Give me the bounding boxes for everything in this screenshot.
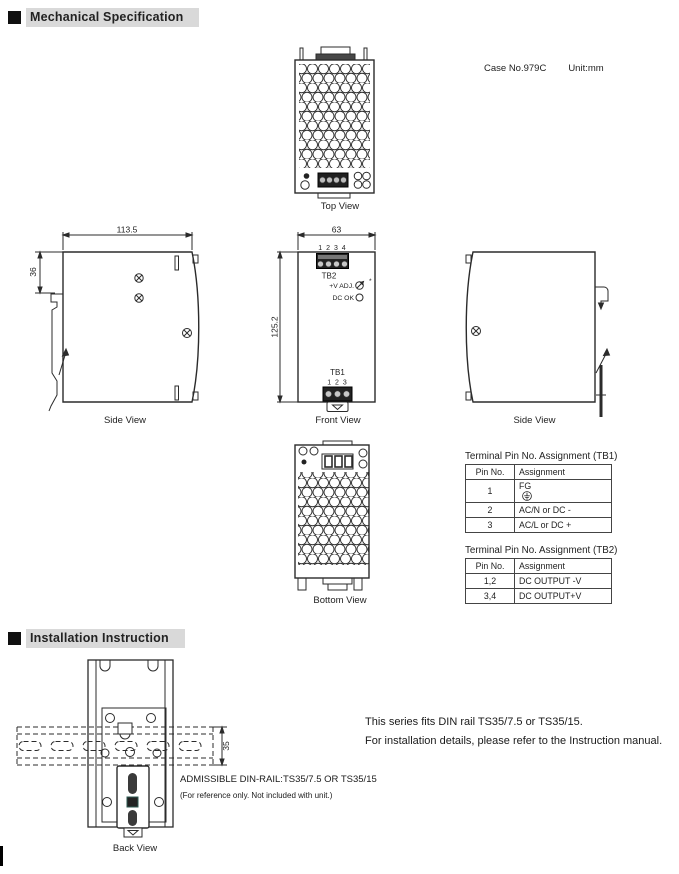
tb1-pin-numbers: 1 2 3: [327, 380, 348, 387]
tb2-row2-pin: 3,4: [466, 589, 515, 604]
bottom-view-drawing: [285, 440, 395, 598]
dim-body-width: 113.5: [117, 225, 138, 235]
tb1-row2-assign: AC/N or DC -: [515, 503, 612, 518]
tb1-label: TB1: [330, 368, 345, 377]
case-number: Case No.979C: [484, 63, 546, 74]
ground-icon: [522, 491, 532, 501]
table-row: 3 AC/L or DC +: [466, 518, 612, 533]
tb1-row3-assign: AC/L or DC +: [515, 518, 612, 533]
front-din-clip: [327, 402, 348, 412]
tb2-row2-assign: DC OUTPUT+V: [515, 589, 612, 604]
tb2-terminal-block: [317, 254, 349, 269]
fit-note-line1: This series fits DIN rail TS35/7.5 or TS…: [365, 713, 662, 732]
front-view-label: Front View: [282, 415, 394, 426]
fg-text: FG: [519, 481, 531, 491]
tb2-row1-pin: 1,2: [466, 574, 515, 589]
table-row: 1 FG: [466, 480, 612, 503]
section-header-installation: Installation Instruction: [8, 629, 185, 648]
tb1-row2-pin: 2: [466, 503, 515, 518]
fit-note-line2: For installation details, please refer t…: [365, 732, 662, 751]
tb2-pin-numbers: 1 2 3 4: [318, 245, 346, 252]
section-bullet-icon: [8, 632, 21, 645]
top-view-label: Top View: [285, 201, 395, 212]
din-rail-fit-note: This series fits DIN rail TS35/7.5 or TS…: [365, 713, 662, 750]
vent-holes-pattern: [298, 472, 369, 565]
dim-rail-width: 35: [221, 741, 231, 751]
section-header-mechanical: Mechanical Specification: [8, 8, 199, 27]
top-view-terminal-area: [301, 172, 371, 198]
dim-front-width: 63: [332, 225, 342, 235]
top-view-drawing: [285, 45, 395, 203]
tb2-col-assign: Assignment: [515, 559, 612, 574]
tb1-row3-pin: 3: [466, 518, 515, 533]
table-row: 2 AC/N or DC -: [466, 503, 612, 518]
back-view-label: Back View: [75, 843, 195, 854]
unit-note: Unit:mm: [568, 63, 603, 74]
tb2-row1-assign: DC OUTPUT -V: [515, 574, 612, 589]
side-view-left-label: Side View: [60, 415, 190, 426]
tb2-label: TB2: [322, 272, 337, 281]
dc-ok-label: DC OK: [332, 295, 354, 302]
bottom-view-feet: [298, 578, 362, 590]
tb1-row1-pin: 1: [466, 480, 515, 503]
side-view-right-drawing: [455, 225, 620, 423]
side-view-right-label: Side View: [472, 415, 597, 426]
dim-clip-depth: 36: [28, 267, 38, 277]
tb2-table: Pin No. Assignment 1,2 DC OUTPUT -V 3,4 …: [465, 558, 612, 604]
admissible-rail-note: ADMISSIBLE DIN-RAIL:TS35/7.5 OR TS35/15: [180, 774, 377, 785]
case-note: Case No.979CUnit:mm: [484, 63, 626, 74]
tb1-terminal-block: [323, 387, 352, 401]
tb1-table: Pin No. Assignment 1 FG 2 AC/N or DC - 3…: [465, 464, 612, 533]
side-view-left-drawing: 113.5 36: [25, 225, 240, 423]
tb2-col-pin: Pin No.: [466, 559, 515, 574]
section-title-installation: Installation Instruction: [26, 629, 185, 648]
table-row: 1,2 DC OUTPUT -V: [466, 574, 612, 589]
vent-holes-pattern: [299, 64, 370, 168]
section-bullet-icon: [8, 11, 21, 24]
dim-body-height: 125.2: [270, 316, 280, 338]
pin-assignment-tables: Terminal Pin No. Assignment (TB1) Pin No…: [465, 451, 645, 604]
page-edge-mark: [0, 846, 3, 866]
tb1-col-assign: Assignment: [515, 465, 612, 480]
v-adj-asterisk: *: [369, 278, 372, 285]
back-view-drawing: 35: [15, 655, 265, 845]
datasheet-page: Mechanical Specification Case No.979CUni…: [0, 0, 679, 874]
reference-note: (For reference only. Not included with u…: [180, 791, 332, 800]
table-row: 3,4 DC OUTPUT+V: [466, 589, 612, 604]
tb1-col-pin: Pin No.: [466, 465, 515, 480]
tb1-table-title: Terminal Pin No. Assignment (TB1): [465, 451, 645, 462]
section-title-mechanical: Mechanical Specification: [26, 8, 199, 27]
tb1-row1-assign: FG: [515, 480, 612, 503]
bottom-view-label: Bottom View: [285, 595, 395, 606]
front-view-drawing: 63 125.2 1 2 3 4 TB2 +V ADJ. * DC OK TB1…: [270, 225, 390, 423]
v-adj-label: +V ADJ.: [329, 283, 354, 290]
din-clip-assembly: [117, 766, 149, 837]
tb2-table-title: Terminal Pin No. Assignment (TB2): [465, 545, 645, 556]
